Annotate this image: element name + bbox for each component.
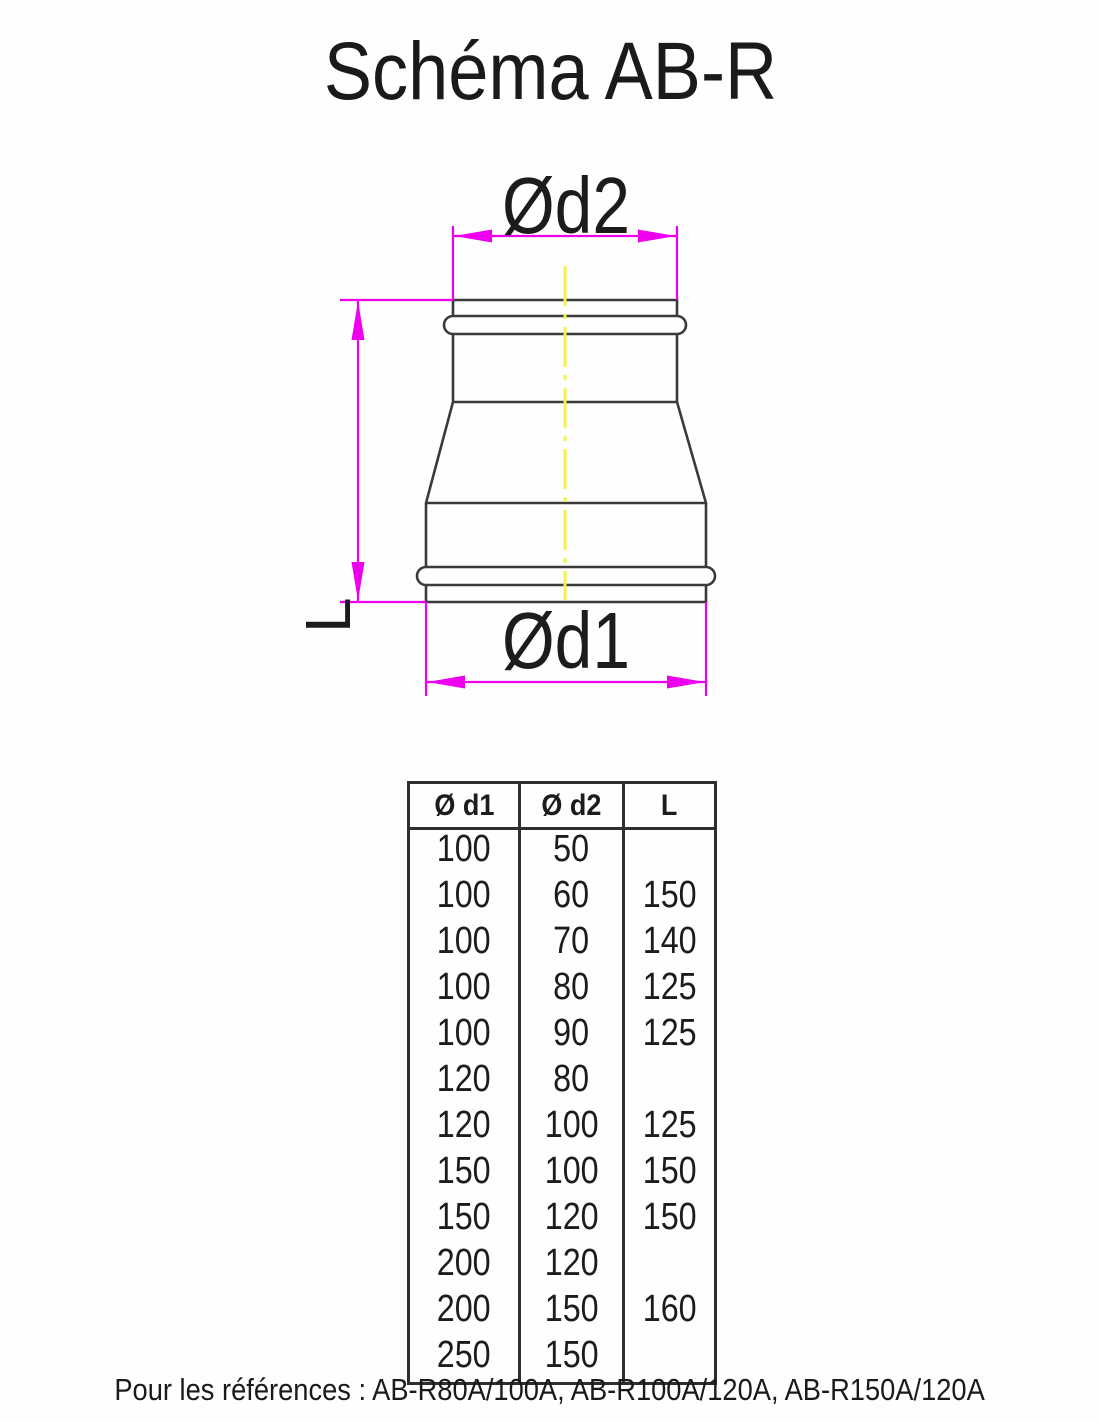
- table-cell: 100: [409, 968, 520, 1014]
- d1-arrow-left: [427, 676, 465, 689]
- table-row: 10080125: [409, 968, 716, 1014]
- d1-arrow-right: [667, 676, 705, 689]
- length-arrow-top: [352, 301, 365, 340]
- table-cell: 120: [520, 1198, 624, 1244]
- table-cell: 100: [409, 922, 520, 968]
- references-caption-text: Pour les références : AB-R80A/100A, AB-R…: [115, 1370, 985, 1410]
- table-cell: [624, 829, 716, 877]
- table-cell: 160: [624, 1290, 716, 1336]
- table-cell: 70: [520, 922, 624, 968]
- table-body: 1005010060150100701401008012510090125120…: [409, 829, 716, 1384]
- references-caption: Pour les références : AB-R80A/100A, AB-R…: [0, 1370, 1100, 1410]
- table-row: 12080: [409, 1060, 716, 1106]
- page: Schéma AB-R Ød2 L: [0, 0, 1100, 1422]
- table-row: 10070140: [409, 922, 716, 968]
- d1-dimension: Ød1: [426, 596, 706, 696]
- table-row: 10050: [409, 829, 716, 877]
- table-cell: 150: [409, 1152, 520, 1198]
- d2-arrow-right: [638, 230, 676, 243]
- table-row: 120100125: [409, 1106, 716, 1152]
- table-header-row: Ø d1 Ø d2 L: [409, 783, 716, 829]
- dimensions-table: Ø d1 Ø d2 L 1005010060150100701401008012…: [407, 781, 717, 1385]
- table-cell: 125: [624, 1106, 716, 1152]
- table-cell: 80: [520, 968, 624, 1014]
- table-cell: 150: [624, 876, 716, 922]
- d2-arrow-left: [454, 230, 492, 243]
- table-cell: 100: [409, 876, 520, 922]
- table-cell: 200: [409, 1244, 520, 1290]
- d2-label: Ød2: [502, 161, 630, 250]
- table-cell: 140: [624, 922, 716, 968]
- d1-label: Ød1: [502, 596, 630, 685]
- table-cell: 100: [520, 1106, 624, 1152]
- table-cell: 60: [520, 876, 624, 922]
- table-row: 200120: [409, 1244, 716, 1290]
- page-title: Schéma AB-R: [0, 32, 1100, 112]
- table-cell: [624, 1244, 716, 1290]
- table-cell: [624, 1060, 716, 1106]
- reducer-diagram: Ød2 L Ød1: [0, 150, 1100, 730]
- table-cell: 100: [409, 1014, 520, 1060]
- table-header-d2: Ø d2: [520, 783, 624, 829]
- table-cell: 80: [520, 1060, 624, 1106]
- length-label: L: [292, 597, 364, 633]
- table-row: 10090125: [409, 1014, 716, 1060]
- table-cell: 150: [624, 1152, 716, 1198]
- table-cell: 200: [409, 1290, 520, 1336]
- table-row: 150100150: [409, 1152, 716, 1198]
- table-cell: 150: [624, 1198, 716, 1244]
- table-cell: 120: [409, 1060, 520, 1106]
- table-cell: 100: [520, 1152, 624, 1198]
- table-cell: 120: [520, 1244, 624, 1290]
- table-row: 150120150: [409, 1198, 716, 1244]
- table-header-d1: Ø d1: [409, 783, 520, 829]
- table-cell: 125: [624, 1014, 716, 1060]
- table-cell: 90: [520, 1014, 624, 1060]
- length-arrow-bottom: [352, 562, 365, 601]
- table-cell: 120: [409, 1106, 520, 1152]
- table-cell: 100: [409, 829, 520, 877]
- page-title-text: Schéma AB-R: [323, 32, 776, 112]
- table-row: 10060150: [409, 876, 716, 922]
- table-header-l: L: [624, 783, 716, 829]
- table-row: 200150160: [409, 1290, 716, 1336]
- table-cell: 150: [520, 1290, 624, 1336]
- table-cell: 50: [520, 829, 624, 877]
- table-cell: 150: [409, 1198, 520, 1244]
- table-cell: 125: [624, 968, 716, 1014]
